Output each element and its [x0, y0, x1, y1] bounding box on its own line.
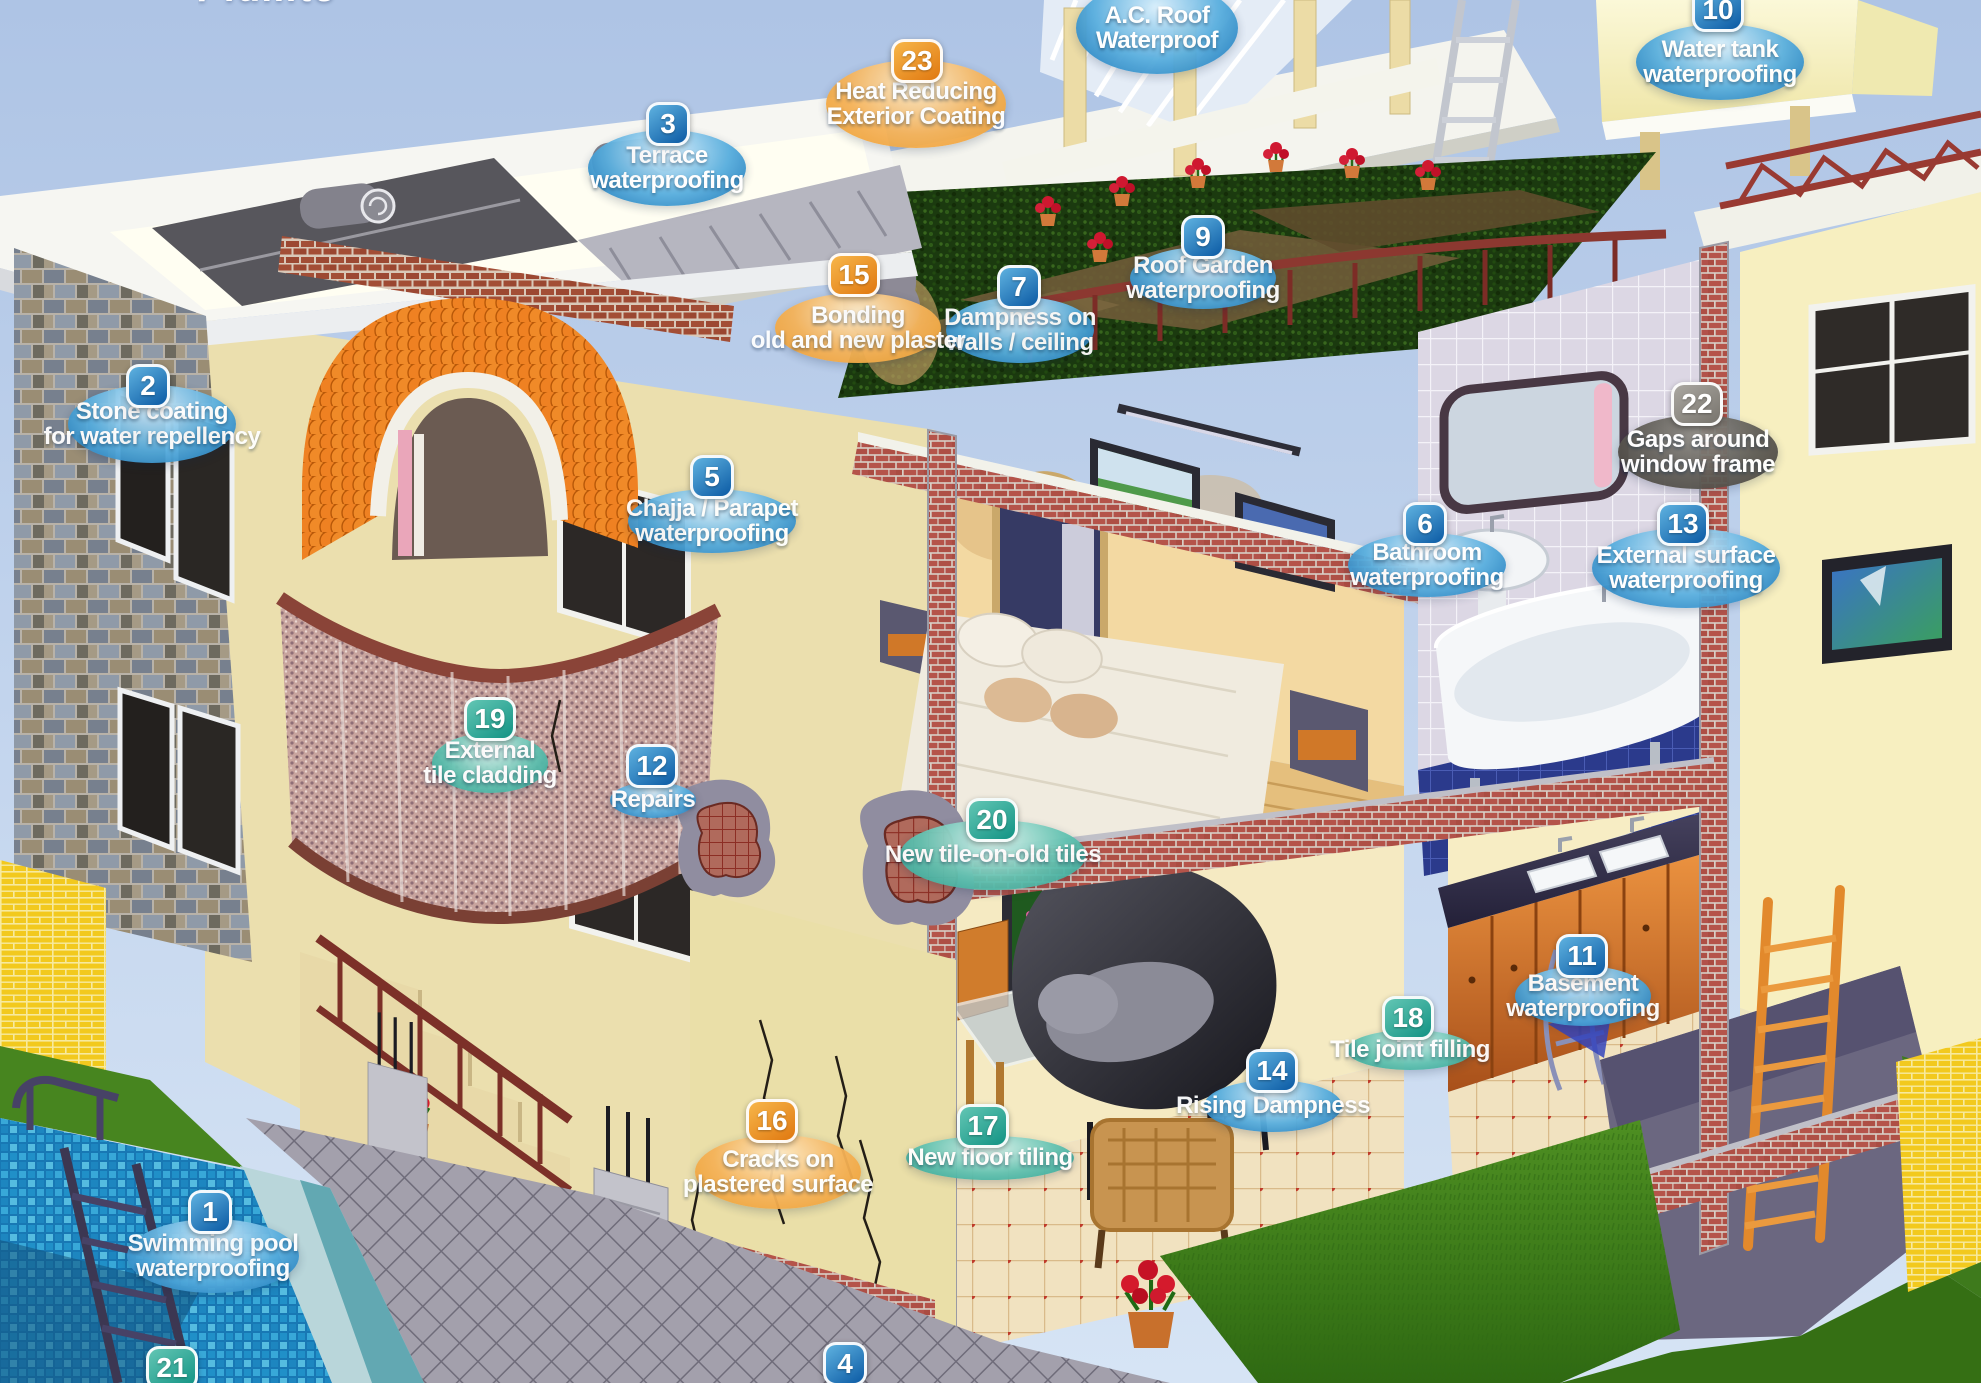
waterproofing-house-diagram: Pidilite Swimming poolwaterproofing1Ston… [0, 0, 1981, 1383]
wall-tv-picture [1822, 544, 1952, 664]
brand-logo: Pidilite [198, 0, 518, 10]
yellow-tile-wall-right [1896, 1038, 1981, 1292]
house-cutaway-illustration [0, 0, 1981, 1383]
right-wing-window [1812, 288, 1972, 452]
bathroom-mirror [1444, 373, 1624, 512]
